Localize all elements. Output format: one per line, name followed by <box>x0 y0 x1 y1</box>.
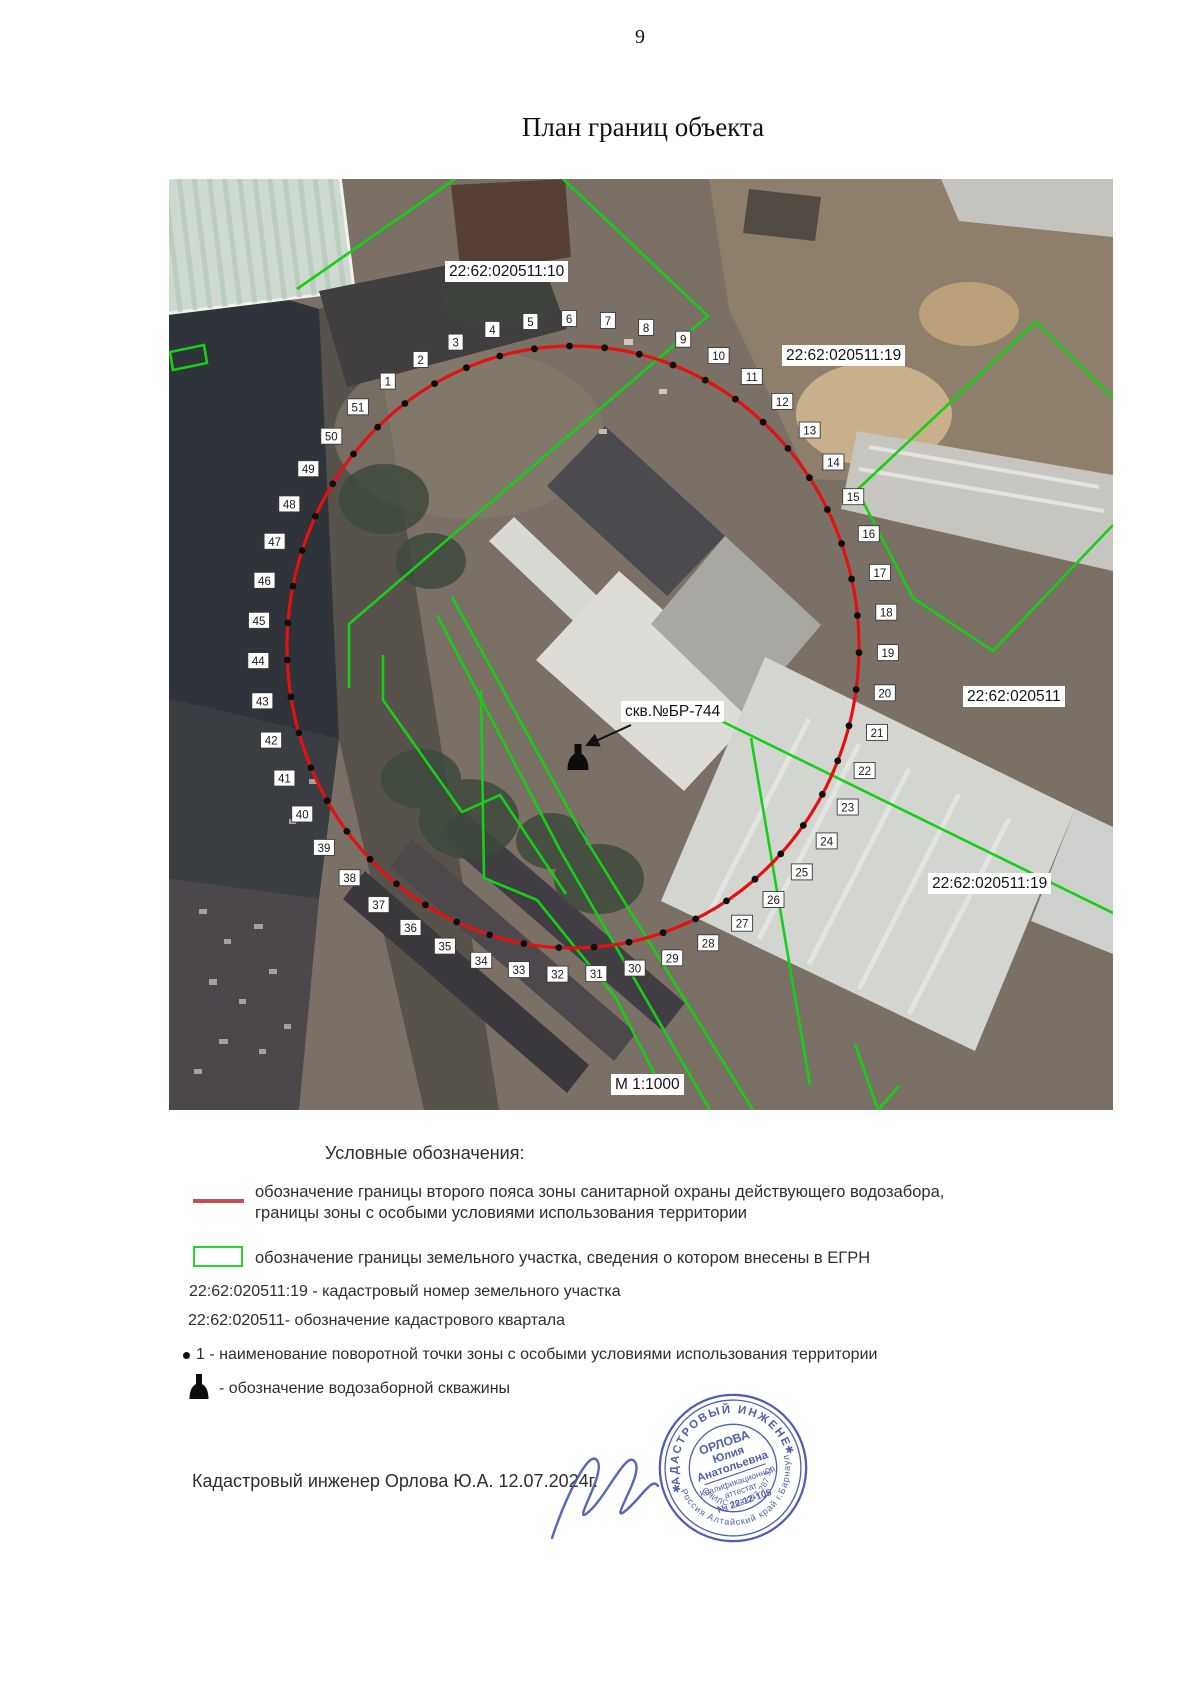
point-label: 3 <box>452 338 458 350</box>
boundary-point-dot <box>670 362 677 369</box>
point-label: 12 <box>776 397 789 409</box>
boundary-point-dot <box>626 939 633 946</box>
point-label: 42 <box>265 736 278 748</box>
point-label: 47 <box>268 537 281 549</box>
point-label: 39 <box>318 843 331 855</box>
point-label: 20 <box>878 688 891 700</box>
boundary-point-dot <box>760 419 767 426</box>
point-label: 13 <box>803 426 816 438</box>
point-label: 14 <box>827 458 840 470</box>
legend-well-icon <box>186 1372 212 1402</box>
cadastral-quarter-label: 22:62:020511 <box>963 686 1065 707</box>
point-label: 24 <box>820 836 833 848</box>
point-label: 41 <box>278 774 291 786</box>
boundary-point-dot <box>284 657 291 664</box>
point-label: 16 <box>862 529 875 541</box>
legend-point-dot <box>183 1352 190 1359</box>
boundary-point-dot <box>601 344 608 351</box>
document-page: 9 План границ объекта <box>0 0 1200 1697</box>
boundary-point-dot <box>785 445 792 452</box>
legend-heading: Условные обозначения: <box>325 1143 524 1164</box>
point-label: 23 <box>841 803 854 815</box>
point-label: 40 <box>296 810 309 822</box>
point-label: 10 <box>712 351 725 363</box>
boundary-point-dot <box>838 540 845 547</box>
point-label: 33 <box>513 965 526 977</box>
boundary-point-dot <box>308 764 315 771</box>
boundary-point-dot <box>422 901 429 908</box>
engineer-signature-line: Кадастровый инженер Орлова Ю.А. 12.07.20… <box>192 1471 598 1492</box>
boundary-point-dot <box>299 547 306 554</box>
boundary-point-dot <box>374 424 381 431</box>
satellite-map: 1234567891011121314151617181920212223242… <box>169 179 1113 1110</box>
boundary-point-dot <box>350 451 357 458</box>
boundary-point-dot <box>290 583 297 590</box>
point-label: 6 <box>566 314 572 326</box>
legend-red-line-swatch <box>193 1199 244 1203</box>
point-label: 48 <box>283 499 296 511</box>
legend-green-rect-text: обозначение границы земельного участка, … <box>255 1249 870 1268</box>
boundary-point-dot <box>521 940 528 947</box>
point-label: 36 <box>404 923 417 935</box>
boundary-point-dot <box>566 343 573 350</box>
point-label: 17 <box>874 568 887 580</box>
boundary-point-dot <box>853 686 860 693</box>
boundary-point-dot <box>848 576 855 583</box>
boundary-point-dot <box>402 400 409 407</box>
boundary-point-dot <box>702 377 709 384</box>
boundary-point-dot <box>329 480 336 487</box>
boundary-point-dot <box>854 612 861 619</box>
point-label: 51 <box>352 402 365 414</box>
point-label: 5 <box>527 317 533 329</box>
point-label: 9 <box>680 335 686 347</box>
boundary-point-dot <box>393 880 400 887</box>
boundary-point-dot <box>486 932 493 939</box>
point-label: 49 <box>302 464 315 476</box>
legend-red-line-text-1: обозначение границы второго пояса зоны с… <box>255 1183 944 1202</box>
boundary-point-dot <box>723 898 730 905</box>
map-plan: 1234567891011121314151617181920212223242… <box>169 179 1113 1110</box>
point-label: 31 <box>590 969 603 981</box>
parcel-label-right-top: 22:62:020511:19 <box>782 345 905 366</box>
legend-well-item: - обозначение водозаборной скважины <box>219 1380 510 1398</box>
point-label: 32 <box>551 970 564 982</box>
point-label: 37 <box>372 900 385 912</box>
parcel-label-bottom-right: 22:62:020511:19 <box>928 873 1051 894</box>
legend-cad-quarter: 22:62:020511- обозначение кадастрового к… <box>188 1312 565 1330</box>
point-label: 30 <box>628 964 641 976</box>
point-label: 18 <box>880 608 893 620</box>
boundary-point-dot <box>777 851 784 858</box>
point-label: 1 <box>385 377 391 389</box>
boundary-point-dot <box>636 351 643 358</box>
point-label: 25 <box>795 867 808 879</box>
point-label: 2 <box>417 355 423 367</box>
point-label: 11 <box>746 372 758 384</box>
point-label: 19 <box>882 648 895 660</box>
boundary-point-dot <box>453 919 460 926</box>
point-label: 27 <box>736 919 749 931</box>
boundary-point-dot <box>692 916 699 923</box>
point-label: 29 <box>666 953 679 965</box>
point-label: 21 <box>871 728 884 740</box>
boundary-point-dot <box>288 693 295 700</box>
boundary-point-dot <box>660 929 667 936</box>
boundary-point-dot <box>846 722 853 729</box>
page-number: 9 <box>400 26 880 49</box>
boundary-point-dot <box>296 730 303 737</box>
point-label: 50 <box>325 432 338 444</box>
page-title: План границ объекта <box>393 112 893 143</box>
boundary-point-dot <box>556 944 563 951</box>
point-label: 8 <box>643 323 649 335</box>
legend-red-line-text-2: границы зоны с особыми условиями использ… <box>255 1204 747 1223</box>
boundary-point-dot <box>496 353 503 360</box>
boundary-point-dot <box>752 876 759 883</box>
point-label: 44 <box>252 656 265 668</box>
boundary-point-dot <box>806 474 813 481</box>
boundary-point-dot <box>463 364 470 371</box>
point-label: 26 <box>767 895 780 907</box>
boundary-point-dot <box>431 380 438 387</box>
point-label: 4 <box>489 325 496 337</box>
boundary-point-dot <box>591 944 598 951</box>
point-label: 38 <box>343 873 356 885</box>
point-label: 7 <box>605 316 611 328</box>
boundary-point-dot <box>800 822 807 829</box>
legend-green-rect-swatch <box>193 1246 243 1267</box>
boundary-point-dot <box>824 506 831 513</box>
boundary-point-dot <box>732 396 739 403</box>
well-label: скв.№БР-744 <box>621 701 724 722</box>
boundary-point-dot <box>819 791 826 798</box>
boundary-point-dot <box>834 758 841 765</box>
boundary-point-dot <box>856 649 863 656</box>
point-label: 35 <box>439 942 452 954</box>
legend-cad-number: 22:62:020511:19 - кадастровый номер земе… <box>189 1283 621 1301</box>
boundary-point-dot <box>285 620 292 627</box>
boundary-point-dot <box>344 828 351 835</box>
scale-label: М 1:1000 <box>611 1074 684 1095</box>
parcel-label-top-left: 22:62:020511:10 <box>445 261 568 282</box>
point-label: 45 <box>253 616 266 628</box>
point-label: 46 <box>258 576 271 588</box>
boundary-point-dot <box>312 513 319 520</box>
boundary-point-dot <box>324 797 331 804</box>
boundary-point-dot <box>367 856 374 863</box>
boundary-point-dot <box>531 345 538 352</box>
point-label: 43 <box>256 696 269 708</box>
point-label: 34 <box>475 956 488 968</box>
point-label: 15 <box>847 492 860 504</box>
point-label: 28 <box>702 938 715 950</box>
point-label: 22 <box>858 766 871 778</box>
